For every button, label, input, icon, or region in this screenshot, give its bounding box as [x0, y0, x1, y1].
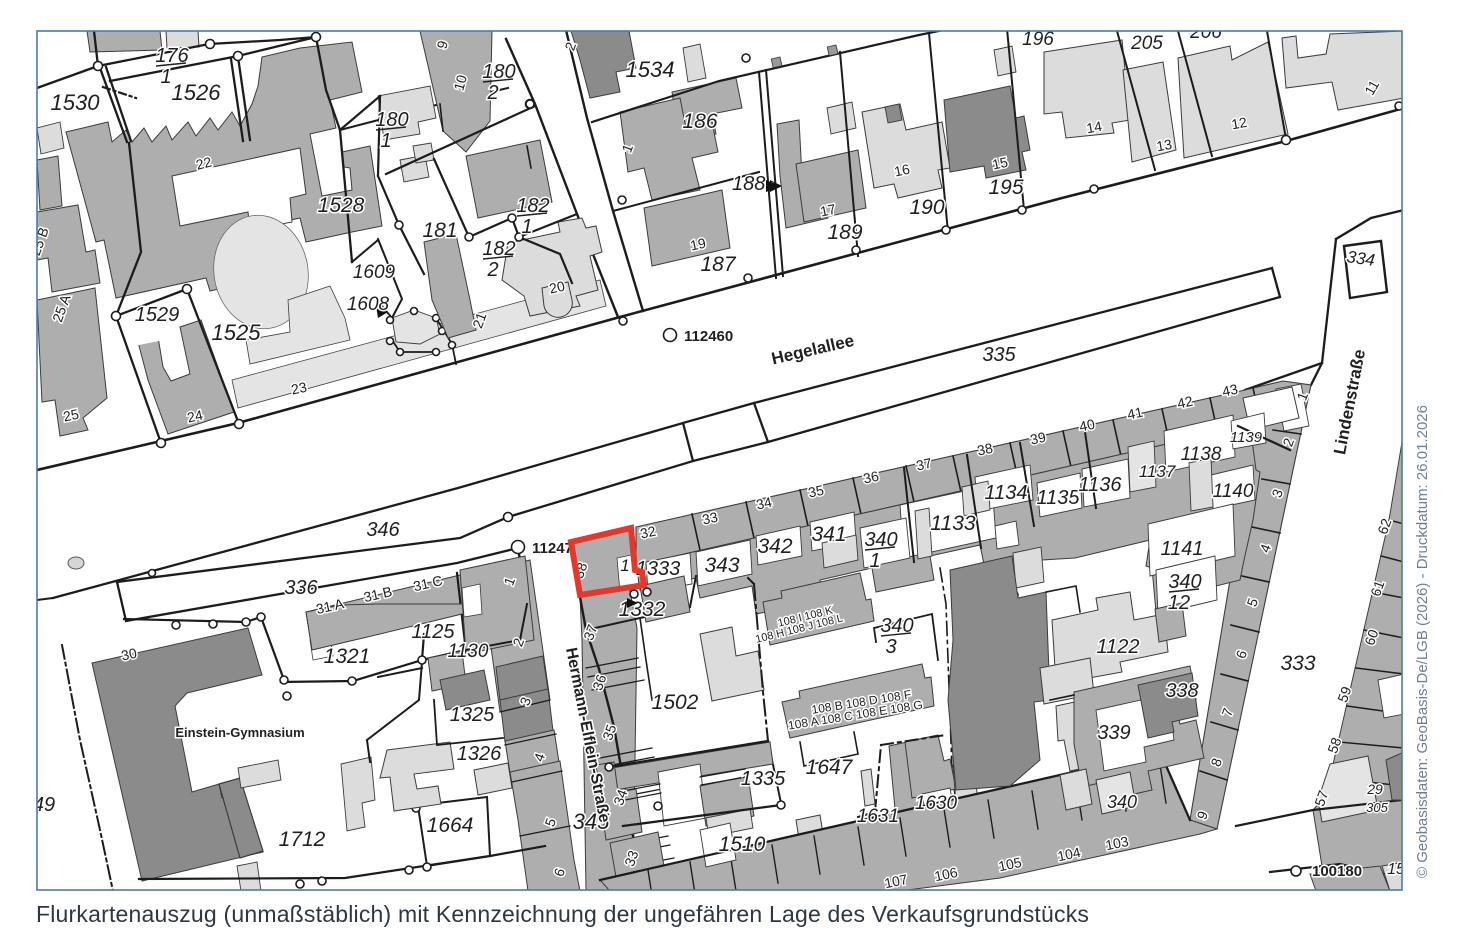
svg-text:342: 342: [757, 535, 792, 558]
svg-text:205: 205: [1130, 33, 1163, 54]
svg-text:Flurkartenauszug (unmaßstäblic: Flurkartenauszug (unmaßstäblich) mit Ken…: [36, 901, 1089, 927]
svg-text:112460: 112460: [684, 328, 733, 345]
svg-text:2: 2: [486, 259, 498, 281]
svg-text:341: 341: [811, 523, 846, 546]
svg-text:1631: 1631: [857, 806, 899, 827]
svg-text:© Geobasisdaten: GeoBasis-De/L: © Geobasisdaten: GeoBasis-De/LGB (2026) …: [1414, 405, 1431, 878]
svg-text:1528: 1528: [318, 194, 365, 217]
svg-text:190: 190: [909, 196, 944, 219]
svg-text:1630: 1630: [915, 793, 958, 814]
svg-text:1534: 1534: [626, 57, 675, 82]
svg-text:1: 1: [620, 556, 629, 575]
svg-text:14: 14: [1085, 118, 1103, 136]
svg-text:13: 13: [1155, 136, 1173, 154]
svg-text:1321: 1321: [324, 645, 371, 668]
svg-text:343: 343: [704, 554, 739, 577]
svg-text:1130: 1130: [448, 641, 489, 662]
svg-text:1502: 1502: [652, 691, 699, 714]
svg-text:346: 346: [366, 519, 400, 541]
svg-text:196: 196: [1022, 29, 1054, 50]
svg-text:12: 12: [1168, 592, 1190, 614]
svg-text:195: 195: [988, 176, 1023, 199]
svg-text:189: 189: [827, 221, 862, 244]
svg-text:12: 12: [1230, 114, 1248, 132]
svg-text:1325: 1325: [450, 704, 495, 726]
svg-text:338: 338: [1165, 680, 1198, 702]
svg-text:1332: 1332: [619, 598, 666, 621]
svg-text:1647: 1647: [806, 756, 854, 779]
svg-text:181: 181: [422, 219, 457, 242]
svg-text:334: 334: [1345, 247, 1376, 270]
svg-text:1134: 1134: [984, 482, 1027, 504]
svg-text:1335: 1335: [741, 768, 786, 790]
svg-text:1135: 1135: [1036, 487, 1080, 509]
svg-text:1141: 1141: [1160, 538, 1203, 560]
svg-text:305: 305: [1366, 800, 1388, 815]
svg-text:1: 1: [380, 130, 391, 152]
svg-text:1139: 1139: [1230, 429, 1263, 446]
svg-text:1140: 1140: [1213, 481, 1254, 502]
svg-text:1530: 1530: [51, 90, 101, 115]
svg-text:1525: 1525: [212, 320, 262, 345]
svg-text:1326: 1326: [457, 743, 502, 765]
svg-text:1: 1: [521, 216, 532, 238]
svg-text:1510: 1510: [719, 833, 766, 856]
svg-text:1608: 1608: [347, 294, 390, 315]
svg-text:1137: 1137: [1139, 462, 1176, 481]
svg-text:1526: 1526: [172, 80, 222, 105]
svg-text:29: 29: [1366, 781, 1383, 797]
svg-text:335: 335: [982, 344, 1016, 366]
svg-text:100180: 100180: [1312, 863, 1362, 880]
svg-text:2: 2: [486, 82, 498, 104]
svg-text:1125: 1125: [411, 621, 455, 643]
svg-text:1664: 1664: [427, 814, 474, 837]
svg-text:339: 339: [1097, 722, 1130, 744]
svg-text:1: 1: [869, 550, 880, 572]
svg-text:1529: 1529: [135, 304, 180, 326]
svg-text:1: 1: [160, 66, 171, 88]
svg-text:11247: 11247: [532, 540, 573, 557]
svg-text:340: 340: [1107, 792, 1137, 812]
svg-text:187: 187: [700, 253, 736, 276]
svg-text:333: 333: [1280, 652, 1315, 675]
svg-text:1136: 1136: [1078, 474, 1122, 496]
svg-text:1133: 1133: [930, 512, 975, 535]
svg-text:1609: 1609: [353, 262, 396, 283]
svg-text:1138: 1138: [1181, 444, 1222, 465]
svg-text:1712: 1712: [279, 828, 326, 851]
svg-text:1122: 1122: [1096, 636, 1139, 658]
svg-text:Einstein-Gymnasium: Einstein-Gymnasium: [175, 725, 304, 740]
svg-text:3: 3: [885, 636, 896, 658]
svg-text:336: 336: [284, 577, 318, 599]
svg-text:186: 186: [682, 110, 717, 133]
